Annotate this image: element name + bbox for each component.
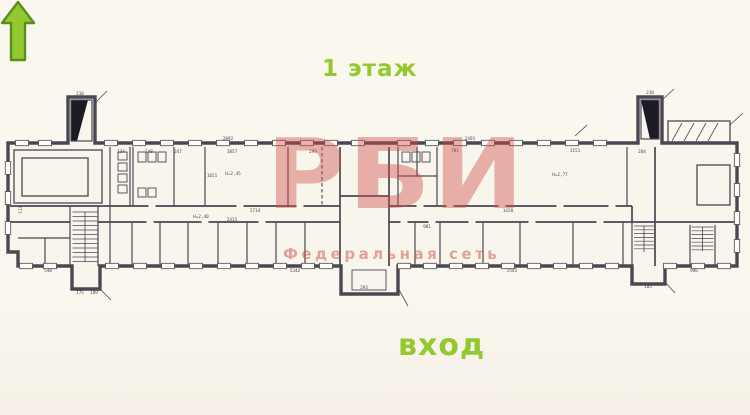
svg-text:113: 113 [18, 206, 24, 214]
svg-text:981: 981 [423, 224, 431, 230]
svg-text:189: 189 [90, 290, 98, 296]
svg-text:1857: 1857 [227, 149, 238, 155]
svg-text:5342: 5342 [290, 268, 301, 274]
svg-text:1651: 1651 [207, 173, 218, 179]
svg-text:204: 204 [638, 149, 646, 155]
entrance-label: вход [398, 328, 485, 363]
svg-text:210: 210 [646, 90, 654, 96]
svg-text:210: 210 [76, 91, 84, 97]
svg-text:Н=2,45: Н=2,45 [225, 171, 241, 177]
svg-text:2491: 2491 [465, 136, 476, 142]
svg-text:Н=2,77: Н=2,77 [552, 172, 568, 178]
floor-title: 1 этаж [322, 56, 417, 82]
svg-text:Н=2,40: Н=2,40 [193, 214, 209, 220]
svg-text:1151: 1151 [570, 148, 581, 154]
svg-text:2892: 2892 [223, 136, 234, 142]
svg-text:781: 781 [451, 148, 459, 154]
floor-plan-page: 2892210210185716512992491781115120414282… [0, 0, 750, 415]
svg-text:247: 247 [174, 149, 182, 155]
svg-text:2545: 2545 [507, 268, 518, 274]
svg-text:2714: 2714 [250, 208, 261, 214]
svg-text:185: 185 [644, 284, 652, 290]
svg-text:946: 946 [690, 268, 698, 274]
svg-text:299: 299 [309, 149, 317, 155]
svg-text:2415: 2415 [227, 217, 238, 223]
svg-text:1428: 1428 [503, 208, 514, 214]
svg-text:175: 175 [76, 290, 84, 296]
svg-text:540: 540 [44, 268, 52, 274]
svg-text:148: 148 [145, 149, 153, 155]
svg-text:293: 293 [360, 285, 368, 291]
svg-text:134: 134 [117, 149, 125, 155]
entrance-arrow-icon [0, 0, 36, 62]
